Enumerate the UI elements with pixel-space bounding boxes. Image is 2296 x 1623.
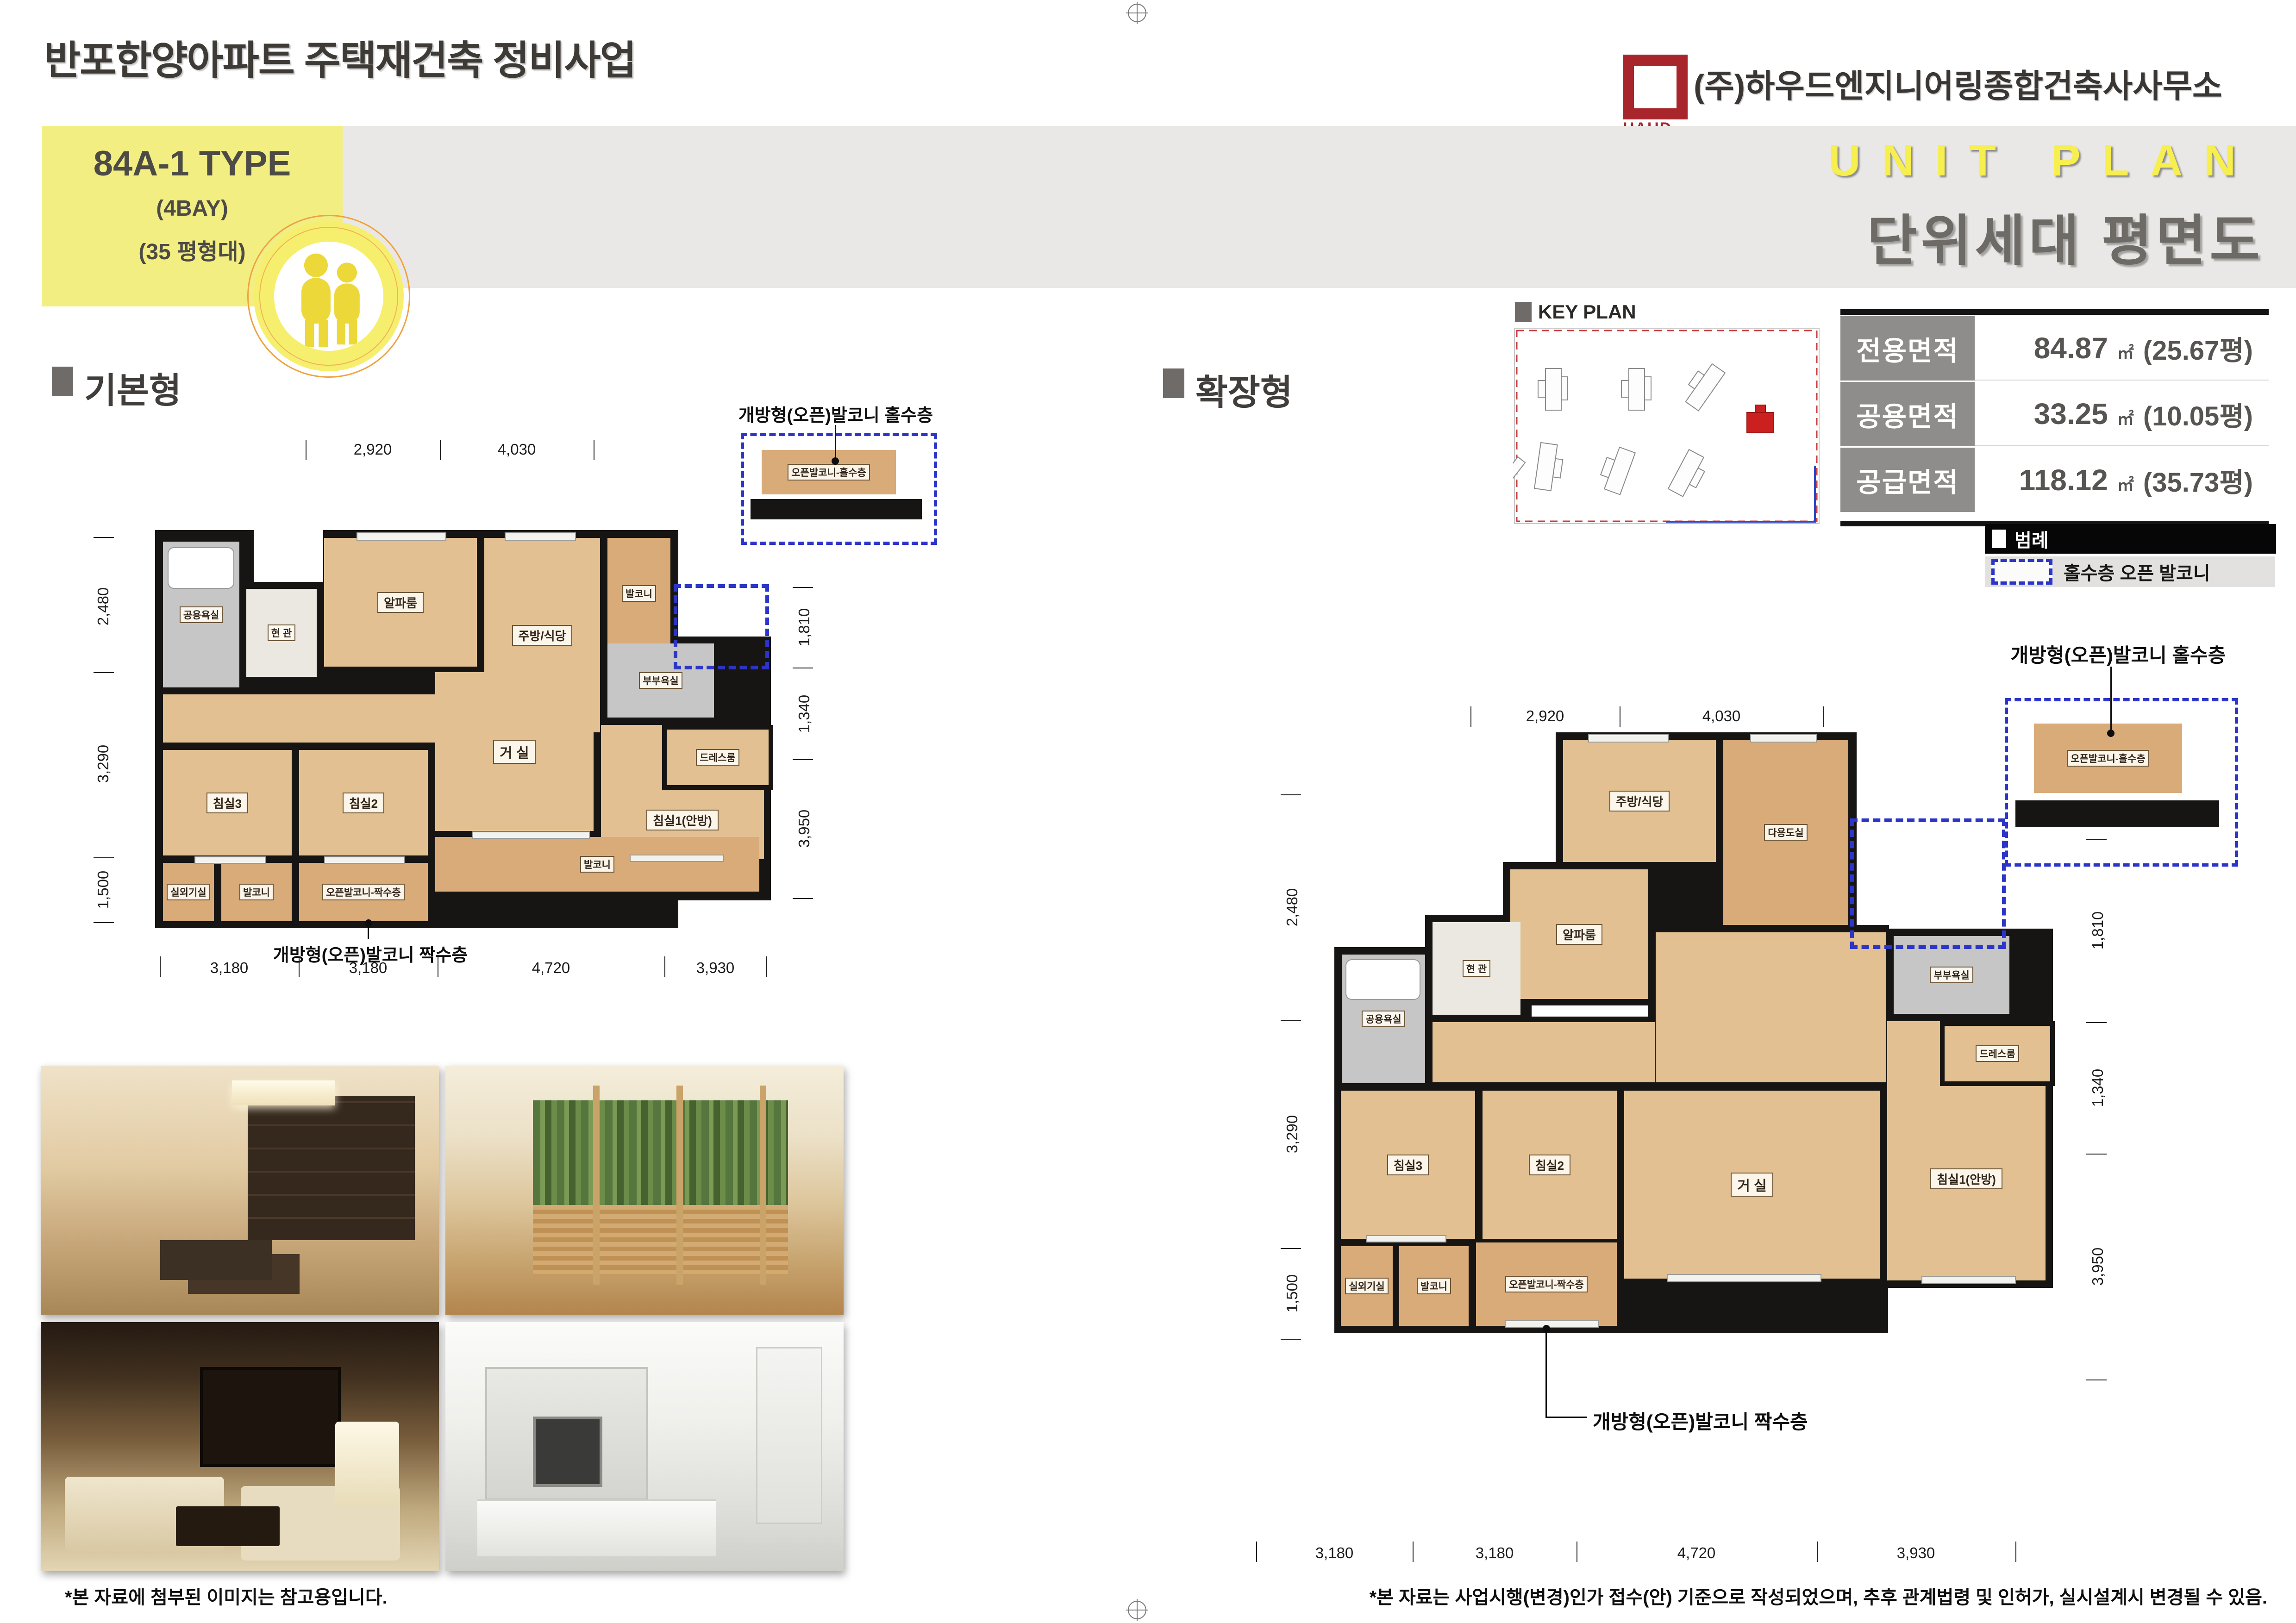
footnote-left: *본 자료에 첨부된 이미지는 참고용입니다. [65, 1582, 388, 1609]
footnote-right: *본 자료는 사업시행(변경)인가 접수(안) 기준으로 작성되었으며, 추후 … [1370, 1582, 2267, 1609]
reference-photos [0, 0, 2296, 1623]
photo-lounge [41, 1066, 439, 1315]
photo-kitchen [445, 1322, 844, 1571]
photo-terrace [445, 1066, 844, 1315]
unit-plan-sheet: 반포한양아파트 주택재건축 정비사업 HAUD (주)하우드엔지니어링종합건축사… [0, 0, 2296, 1623]
photo-livingroom [41, 1322, 439, 1571]
